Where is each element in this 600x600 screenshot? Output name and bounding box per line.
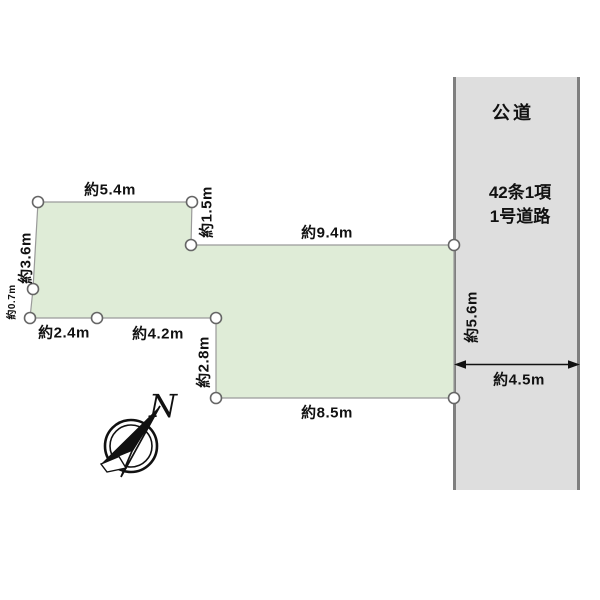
dimension-label-bottom-left-2: 約4.2m: [132, 327, 184, 342]
dimension-label-upper-edge: 約9.4m: [301, 226, 353, 241]
site-plan-diagram: N 約5.4m 約1.5m 約9.4m 約3.6m 約0.7m 約2.4m 約4…: [0, 0, 600, 600]
vertex-marker: [449, 240, 460, 251]
dimension-label-left-edge: 約3.6m: [19, 232, 34, 284]
vertex-marker: [449, 393, 460, 404]
dimension-label-road-frontage: 約5.6m: [465, 291, 480, 343]
north-compass: N: [101, 387, 178, 477]
vertex-marker: [92, 313, 103, 324]
dimension-label-bottom-edge: 約8.5m: [301, 406, 353, 421]
road-regulation-line2: 1号道路: [489, 205, 551, 229]
vertex-marker: [211, 393, 222, 404]
dimension-label-left-small-edge: 約0.7m: [8, 284, 18, 319]
vertex-marker: [28, 284, 39, 295]
dimension-label-notch-edge: 約2.8m: [197, 336, 212, 388]
vertex-marker: [186, 240, 197, 251]
dimension-label-bottom-left-1: 約2.4m: [38, 326, 90, 341]
public-road-area: [453, 77, 580, 490]
land-parcel-shape: [30, 202, 454, 398]
vertex-marker: [187, 197, 198, 208]
dimension-label-road-width: 約4.5m: [493, 373, 545, 388]
road-title: 公道: [492, 99, 534, 125]
north-label: N: [148, 387, 178, 425]
vertex-marker: [33, 197, 44, 208]
site-plan-drawing: N: [0, 0, 600, 600]
road-regulation: 42条1項 1号道路: [489, 181, 551, 229]
dimension-label-top-edge: 約5.4m: [84, 183, 136, 198]
dimension-label-step-edge: 約1.5m: [200, 186, 215, 238]
vertex-marker: [211, 313, 222, 324]
road-regulation-line1: 42条1項: [489, 181, 551, 205]
vertex-marker: [25, 313, 36, 324]
